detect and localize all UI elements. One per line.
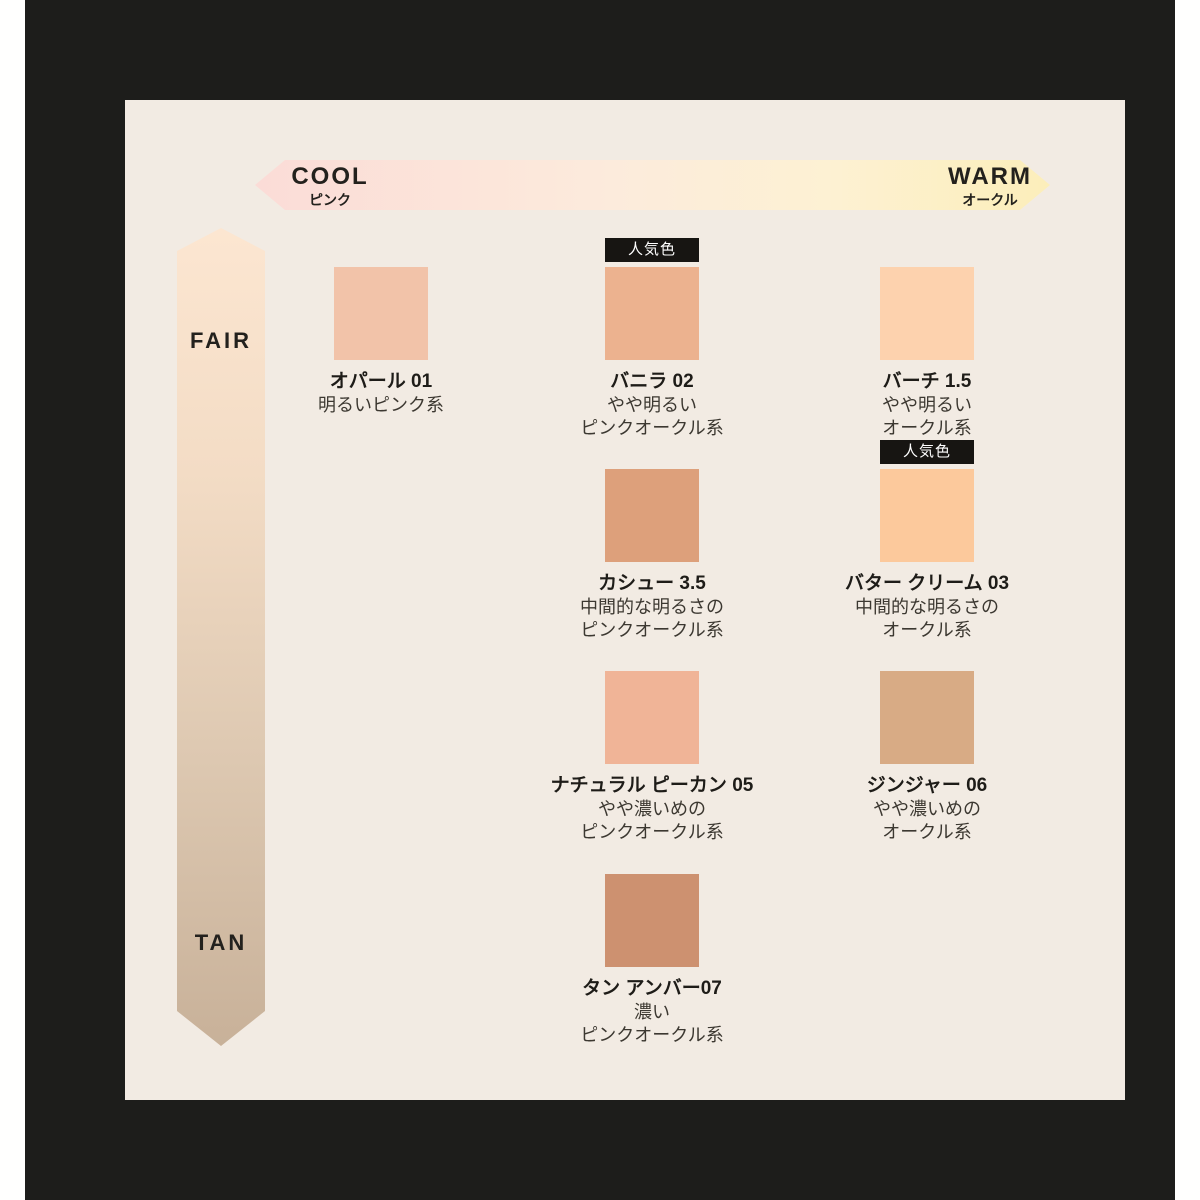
- shade-name: バーチ 1.5: [797, 370, 1057, 394]
- shade-cell: 人気色バター クリーム 03中間的な明るさのオークル系: [797, 440, 1057, 642]
- badge-slot: [251, 238, 511, 267]
- shade-desc: 中間的な明るさの: [522, 596, 782, 619]
- badge-slot: 人気色: [797, 440, 1057, 469]
- shade-name: カシュー 3.5: [522, 572, 782, 596]
- shade-chart-panel: COOL ピンク WARM オークル FAIR TAN オパール 01明るいピン…: [125, 100, 1125, 1100]
- shade-swatch: [880, 671, 974, 764]
- shade-cell: カシュー 3.5中間的な明るさのピンクオークル系: [522, 440, 782, 642]
- badge-slot: [797, 642, 1057, 671]
- shade-desc: やや濃いめの: [522, 798, 782, 821]
- shade-desc: ピンクオークル系: [522, 821, 782, 844]
- shade-name: タン アンバー07: [522, 977, 782, 1001]
- shade-desc: オークル系: [797, 619, 1057, 642]
- shade-desc: 中間的な明るさの: [797, 596, 1057, 619]
- shade-swatch: [605, 267, 699, 360]
- shade-chart-page: { "colors": { "page_margin": "#fffffe", …: [0, 0, 1200, 1200]
- shade-cell: オパール 01明るいピンク系: [251, 238, 511, 417]
- shade-name: ジンジャー 06: [797, 774, 1057, 798]
- shade-swatch: [605, 874, 699, 967]
- tan-label: TAN: [151, 930, 291, 956]
- badge-slot: [522, 642, 782, 671]
- shade-desc: 濃い: [522, 1001, 782, 1024]
- badge-slot: [797, 238, 1057, 267]
- shade-name: バター クリーム 03: [797, 572, 1057, 596]
- badge-slot: [522, 845, 782, 874]
- shade-cell: ナチュラル ピーカン 05やや濃いめのピンクオークル系: [522, 642, 782, 844]
- shade-desc: オークル系: [797, 417, 1057, 440]
- badge-slot: [522, 440, 782, 469]
- shade-swatch: [334, 267, 428, 360]
- black-frame: COOL ピンク WARM オークル FAIR TAN オパール 01明るいピン…: [25, 0, 1175, 1200]
- shade-desc: ピンクオークル系: [522, 619, 782, 642]
- cool-label: COOL: [250, 164, 410, 190]
- shade-desc: オークル系: [797, 821, 1057, 844]
- shade-desc: やや明るい: [522, 394, 782, 417]
- popular-badge: 人気色: [880, 440, 974, 464]
- shade-desc: やや濃いめの: [797, 798, 1057, 821]
- shade-name: バニラ 02: [522, 370, 782, 394]
- shade-name: オパール 01: [251, 370, 511, 394]
- shade-cell: ジンジャー 06やや濃いめのオークル系: [797, 642, 1057, 844]
- shade-cell: タン アンバー07濃いピンクオークル系: [522, 845, 782, 1047]
- shade-swatch: [605, 469, 699, 562]
- shade-name: ナチュラル ピーカン 05: [522, 774, 782, 798]
- warm-axis-label: WARM オークル: [910, 164, 1070, 209]
- shade-cell: バーチ 1.5やや明るいオークル系: [797, 238, 1057, 440]
- warm-sublabel: オークル: [910, 191, 1070, 209]
- badge-slot: 人気色: [522, 238, 782, 267]
- shade-swatch: [880, 267, 974, 360]
- shade-desc: やや明るい: [797, 394, 1057, 417]
- shade-swatch: [880, 469, 974, 562]
- shade-swatch: [605, 671, 699, 764]
- shade-desc: ピンクオークル系: [522, 1024, 782, 1047]
- shade-desc: 明るいピンク系: [251, 394, 511, 417]
- popular-badge: 人気色: [605, 238, 699, 262]
- shade-cell: 人気色バニラ 02やや明るいピンクオークル系: [522, 238, 782, 440]
- warm-label: WARM: [910, 164, 1070, 190]
- shade-desc: ピンクオークル系: [522, 417, 782, 440]
- cool-sublabel: ピンク: [250, 191, 410, 209]
- cool-axis-label: COOL ピンク: [250, 164, 410, 209]
